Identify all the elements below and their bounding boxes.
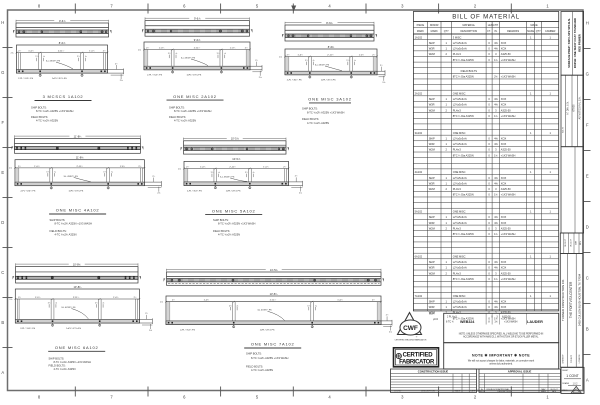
svg-text:⅞: ⅞ [102,302,104,305]
svg-text:C: C [1,270,4,275]
svg-text:PL⅜x3: PL⅜x3 [453,148,462,152]
svg-text:1xPL¾X7⅞ FS: 1xPL¾X7⅞ FS [52,77,67,80]
svg-text:67000: 67000 [573,104,576,112]
svg-text:11'-8¾: 11'-8¾ [74,134,82,138]
svg-text:XOX: XOX [501,176,507,180]
svg-text:8-TC ¾x2¼ A325N +1X3 WASH: 8-TC ¾x2¼ A325N +1X3 WASH [218,221,255,225]
svg-text:1¾: 1¾ [35,55,38,58]
svg-text:LAUDER: LAUDER [527,320,543,324]
svg-text:CERTIFIED WELDING FABRICATOR: CERTIFIED WELDING FABRICATOR [395,339,427,342]
svg-text:W2M: W2M [429,226,435,230]
svg-text:+1X3 WASH: +1X3 WASH [501,58,516,62]
svg-text:W3R: W3R [429,181,435,185]
svg-text:L2½x5x3x⅜: L2½x5x3x⅜ [453,305,468,309]
svg-text:2-PL ¼X4¾ FS: 2-PL ¼X4¾ FS [20,190,35,193]
svg-text:4-TC ¾x2¾ A325N: 4-TC ¾x2¾ A325N [36,119,58,123]
svg-text:3-L 4X3X¼ FS: 3-L 4X3X¼ FS [64,175,79,178]
svg-text:1'-0¾: 1'-0¾ [263,166,269,169]
svg-text:A325-50: A325-50 [501,226,511,230]
svg-text:8TC ¾ Dia A325N: 8TC ¾ Dia A325N [453,58,474,62]
svg-text:DRAWN BY: DRAWN BY [562,354,565,364]
svg-text:1xPL¾X7⅞ FS: 1xPL¾X7⅞ FS [66,327,81,330]
svg-text:10'-8¾: 10'-8¾ [73,285,82,289]
svg-text:8TC ¾ Dia A325N: 8TC ¾ Dia A325N [453,114,474,118]
svg-text:NOTE: UNLESS OTHERWISE SPECIFI: NOTE: UNLESS OTHERWISE SPECIFIED, ALL WE… [459,332,544,335]
svg-text:1'-0¾: 1'-0¾ [113,296,119,299]
svg-text:XOX: XOX [501,266,507,270]
svg-text:1¾: 1¾ [305,59,308,62]
svg-text:9'-6⅞: 9'-6⅞ [194,38,201,42]
svg-text:2402 CULLEN BLVD HOUSTON, TX 7: 2402 CULLEN BLVD HOUSTON, TX 77004 [578,273,582,326]
svg-text:XOX: XOX [501,305,507,309]
svg-text:1xPL¾X7⅞ FS: 1xPL¾X7⅞ FS [260,328,275,331]
svg-text:E: E [1,170,4,175]
svg-text:BILL OF MATERIAL: BILL OF MATERIAL [452,14,520,21]
svg-text:PL⅜x3: PL⅜x3 [453,187,462,191]
svg-text:4-TC ¾x2¾ A325N: 4-TC ¾x2¾ A325N [54,367,76,371]
svg-text:ONE MISC: ONE MISC [453,210,466,214]
svg-text:13'-5¾: 13'-5¾ [270,292,279,296]
svg-text:2⅞: 2⅞ [160,301,163,304]
svg-text:1¾: 1¾ [346,59,349,62]
svg-text:XOX: XOX [501,260,507,264]
svg-text:A325-50: A325-50 [501,311,511,315]
svg-text:4-TC ¾x2¾ A325N: 4-TC ¾x2¾ A325N [218,233,240,237]
svg-text:2⅞: 2⅞ [279,55,282,58]
svg-text:W2M: W2M [429,108,435,112]
svg-text:⅞: ⅞ [43,55,45,58]
svg-text:2A102: 2A102 [415,92,423,96]
svg-text:8TC ¾ Dia A325N: 8TC ¾ Dia A325N [453,153,474,157]
svg-text:REMARKS: REMARKS [507,30,519,33]
svg-text:4-TC ¾x2¾ A325N: 4-TC ¾x2¾ A325N [307,121,329,125]
svg-text:⅞: ⅞ [354,59,356,62]
svg-text:DRAWN: DRAWN [562,382,569,385]
svg-text:⅞: ⅞ [224,52,226,55]
svg-text:XOX: XOX [501,215,507,219]
svg-text:MAKE: MAKE [527,30,534,33]
svg-text:102: 102 [572,381,577,385]
svg-text:1'-0¾: 1'-0¾ [120,165,126,168]
svg-text:+1X3 WASH: +1X3 WASH [501,232,516,236]
svg-text:8'-6¾: 8'-6¾ [328,45,335,49]
svg-text:QTY: QTY [444,30,449,33]
svg-text:L2½x5x3x⅜: L2½x5x3x⅜ [453,260,468,264]
svg-text:L2½x5x3x⅜: L2½x5x3x⅜ [453,142,468,146]
svg-text:+1X3 WASH: +1X3 WASH [501,277,516,281]
svg-text:3-L 4X3X¼ FS: 3-L 4X3X¼ FS [61,306,76,309]
svg-text:L2½x5x3x⅜: L2½x5x3x⅜ [453,299,468,303]
svg-text:9'-6⅞: 9'-6⅞ [59,19,66,23]
svg-text:L2½x5x3x⅜: L2½x5x3x⅜ [453,103,468,107]
svg-text:XOX: XOX [501,41,507,45]
svg-text:3-L 4X3X¼ FS: 3-L 4X3X¼ FS [257,309,272,312]
svg-text:L2½x5x3x⅜: L2½x5x3x⅜ [453,221,468,225]
svg-text:1¾: 1¾ [217,52,220,55]
svg-text:1'-0¾: 1'-0¾ [297,54,303,57]
svg-text:SHIP BOLTS:: SHIP BOLTS: [50,218,66,222]
svg-text:+1X3 WASH: +1X3 WASH [501,114,516,118]
svg-text:DATE: DATE [470,389,476,392]
svg-text:W2M: W2M [429,187,435,191]
svg-text:1¾: 1¾ [245,171,248,174]
svg-text:D: D [1,220,4,225]
svg-text:SHIP BOLTS:: SHIP BOLTS: [49,357,65,361]
svg-text:F: F [586,123,589,128]
svg-text:1¾: 1¾ [77,55,80,58]
svg-text:5A102: 5A102 [415,210,423,214]
svg-text:PL⅜x3: PL⅜x3 [453,271,462,275]
svg-text:H: H [1,20,4,25]
svg-text:2-PL ¼X4¾ FS: 2-PL ¼X4¾ FS [187,189,202,192]
svg-text:µC/4: µC/4 [433,319,439,321]
svg-text:CERTIFIED: CERTIFIED [403,353,434,359]
svg-text:8TC ¾ Dia A325N: 8TC ¾ Dia A325N [453,75,474,79]
svg-text:B: B [1,320,4,325]
svg-text:XOX: XOX [501,221,507,225]
svg-text:XOX: XOX [501,97,507,101]
svg-text:A325-50: A325-50 [501,271,511,275]
svg-text:+1X3 WASH: +1X3 WASH [501,75,516,79]
svg-text:PROJECT: PROJECT [571,355,573,363]
svg-text:L2½x5x3x⅜: L2½x5x3x⅜ [453,41,468,45]
svg-text:F: F [2,120,5,125]
svg-text:ACCORDANCE WITH AWS D1.1 WITH: ACCORDANCE WITH AWS D1.1 WITH E70XX OR E… [463,336,539,339]
svg-text:unless duly authorized.: unless duly authorized. [489,363,513,366]
svg-text:1¾: 1¾ [103,171,106,174]
svg-text:2⅞: 2⅞ [382,81,385,84]
svg-text:THE FORTVITA CENTER: THE FORTVITA CENTER [569,281,573,318]
svg-text:2-PL ¼X4¾ FS: 2-PL ¼X4¾ FS [180,328,195,331]
svg-text:QTY: QTY [536,30,541,33]
svg-text:3-L 4X3X¼ FS: 3-L 4X3X¼ FS [315,64,330,67]
svg-text:2⅞: 2⅞ [9,298,12,301]
svg-text:3A102: 3A102 [415,131,423,135]
svg-text:⅞: ⅞ [313,59,315,62]
svg-text:L2½x5x3x⅜: L2½x5x3x⅜ [453,181,468,185]
svg-text:8-TC ¾x2¼ A325N +1X3 WASH: 8-TC ¾x2¼ A325N +1X3 WASH [55,221,92,225]
svg-text:SHIP: SHIP [429,260,435,264]
svg-text:3 MCSCS 1A102: 3 MCSCS 1A102 [43,94,84,99]
svg-text:FIELD BOLTS: FIELD BOLTS [461,69,478,73]
svg-text:L2½x5x3x⅜: L2½x5x3x⅜ [453,47,468,51]
svg-text:11'-8¾: 11'-8¾ [76,156,84,160]
svg-text:2⅞: 2⅞ [9,167,12,170]
svg-text:1'-0¾: 1'-0¾ [230,47,236,50]
svg-text:4-TC ¾x2¾ A325N: 4-TC ¾x2¾ A325N [174,119,196,123]
svg-text:13'-5¾: 13'-5¾ [270,268,279,272]
svg-text:SHIP: SHIP [429,137,435,141]
svg-text:1¾: 1¾ [229,304,232,307]
svg-text:A325-50: A325-50 [501,52,511,56]
svg-text:WEB324: WEB324 [460,320,474,324]
svg-text:ONE MISC 6A102: ONE MISC 6A102 [55,345,99,350]
svg-text:H: H [586,21,589,26]
svg-text:PL⅜x3: PL⅜x3 [453,108,462,112]
svg-text:1'-0¾: 1'-0¾ [204,299,210,302]
svg-text:DESCRIPTION: DESCRIPTION [421,390,435,392]
svg-text:SHIP BOLTS:: SHIP BOLTS: [302,106,318,110]
svg-text:W3R: W3R [429,266,435,270]
svg-text:ONE MISC 4A102: ONE MISC 4A102 [56,208,100,213]
svg-text:PL⅜x3: PL⅜x3 [453,311,462,315]
svg-text:8-TC ¾x2¼ A325N +1X3 WASH: 8-TC ¾x2¼ A325N +1X3 WASH [251,356,288,360]
svg-text:XOX: XOX [501,181,507,185]
svg-text:DESCRIPTION: DESCRIPTION [498,391,512,393]
svg-text:8TC ¾ Dia A325N: 8TC ¾ Dia A325N [453,277,474,281]
svg-text:1'-0¾: 1'-0¾ [359,54,365,57]
svg-text:E: E [586,174,589,179]
svg-text:MARK: MARK [417,30,424,33]
svg-text:L2½x5x3x⅜: L2½x5x3x⅜ [453,137,468,141]
svg-text:8-TC ¾x2¼ A325N +1X3 WASH: 8-TC ¾x2¼ A325N +1X3 WASH [36,109,73,113]
svg-text:8-TC ¾x2¼ A325N +1X3 WASH: 8-TC ¾x2¼ A325N +1X3 WASH [174,109,211,113]
svg-text:⅞: ⅞ [236,304,238,307]
svg-text:⅞: ⅞ [175,52,177,55]
svg-text:SHIP: SHIP [429,176,435,180]
svg-text:G: G [1,70,4,75]
svg-text:3-L 4X3X¼ FS: 3-L 4X3X¼ FS [181,57,196,60]
svg-text:3 MISC: 3 MISC [453,35,462,39]
svg-text:4-TC ¾x2¾ A325N: 4-TC ¾x2¾ A325N [55,233,77,237]
svg-text:ONE MISC: ONE MISC [453,255,466,259]
svg-text:L2½x5x3x⅜: L2½x5x3x⅜ [453,97,468,101]
svg-text:ONE MISC: ONE MISC [453,294,466,298]
svg-text:1'-0¾: 1'-0¾ [89,50,95,53]
svg-text:L2½x5x3x⅜: L2½x5x3x⅜ [453,176,468,180]
svg-text:SHIP: SHIP [429,97,435,101]
svg-text:⅞: ⅞ [55,302,57,305]
svg-text:1'-0¾: 1'-0¾ [159,47,165,50]
svg-text:1'-0¾: 1'-0¾ [35,296,41,299]
svg-text:1¾: 1¾ [168,52,171,55]
svg-text:⅞: ⅞ [253,171,255,174]
svg-text:SHIP BOLTS:: SHIP BOLTS: [31,106,47,110]
svg-text:1¾: 1¾ [210,171,213,174]
svg-text:08-15-07: 08-15-07 [570,239,572,247]
svg-text:1xPL¾X7⅞ FS: 1xPL¾X7⅞ FS [321,79,336,82]
svg-text:ONE MISC 5A102: ONE MISC 5A102 [212,208,256,213]
svg-text:+1X3 WASH: +1X3 WASH [501,153,516,157]
svg-text:¾" DIA. U.N.: ¾" DIA. U.N. [567,101,570,115]
svg-text:SHIP: SHIP [429,41,435,45]
svg-text:8 TC ¾: 8 TC ¾ [446,321,455,324]
svg-text:2⅞: 2⅞ [138,48,141,51]
svg-text:1'-0¾: 1'-0¾ [337,299,343,302]
svg-text:FIELD BOLTS:: FIELD BOLTS: [213,229,230,233]
svg-text:1xPL¾X7⅞ FS: 1xPL¾X7⅞ FS [226,189,241,192]
svg-text:2-PL ¼X4¾ FS: 2-PL ¼X4¾ FS [20,327,35,330]
svg-text:TURNER CONSTRUCTION CO.: TURNER CONSTRUCTION CO. [561,279,565,321]
svg-text:⅞: ⅞ [111,171,113,174]
svg-text:1'-0¾: 1'-0¾ [28,50,34,53]
svg-text:CONSTRUCTION ISSUE: CONSTRUCTION ISSUE [418,370,449,374]
svg-text:FIELD BOLTS:: FIELD BOLTS: [302,117,319,121]
svg-text:ONE MISC: ONE MISC [453,131,466,135]
svg-text:APPROVAL ISSUE: APPROVAL ISSUE [508,370,532,374]
svg-text:COL NO: COL NO [394,390,402,392]
svg-text:2⅞: 2⅞ [157,192,160,195]
svg-text:BOLTS: BOLTS [563,126,565,133]
svg-text:ONE MISC 2A102: ONE MISC 2A102 [173,94,217,99]
svg-text:A: A [1,370,4,375]
svg-text:FIELD BOLTS:: FIELD BOLTS: [49,364,66,368]
svg-text:CAMBER: CAMBER [545,30,556,33]
svg-text:MINOR: MINOR [430,23,439,27]
svg-text:RED PRIMER: RED PRIMER [578,34,582,52]
svg-text:1'-0¾: 1'-0¾ [34,165,40,168]
svg-text:XOX: XOX [501,137,507,141]
svg-text:2⅞: 2⅞ [259,76,262,79]
svg-text:WELD: WELD [562,390,568,392]
svg-text:2⅞: 2⅞ [11,51,14,54]
svg-text:7A102: 7A102 [415,294,423,298]
svg-text:MADE: MADE [455,389,461,392]
svg-text:2⅞: 2⅞ [299,192,302,195]
svg-text:9'-6⅞: 9'-6⅞ [194,16,201,20]
svg-text:8TC ¾ Dia A325N: 8TC ¾ Dia A325N [453,232,474,236]
svg-text:2⅞: 2⅞ [149,329,152,332]
svg-text:B: B [586,327,589,332]
svg-text:⅞: ⅞ [315,304,317,307]
svg-text:FIELD BOLTS:: FIELD BOLTS: [50,229,67,233]
svg-text:CHK BY: CHK BY [479,391,486,393]
svg-text:We will not accept charges for: We will not accept charges for labor, ma… [468,359,535,362]
svg-text:1'-0¾: 1'-0¾ [200,166,206,169]
svg-text:1 CONT: 1 CONT [566,374,578,378]
svg-text:SHEET: SHEET [562,370,569,372]
svg-text:XOX: XOX [501,142,507,146]
svg-text:4-TC ¾x2¾ A325N: 4-TC ¾x2¾ A325N [251,368,273,372]
svg-text:3-L 4X3X¼ FS: 3-L 4X3X¼ FS [220,176,235,179]
svg-text:1¾: 1¾ [95,302,98,305]
svg-text:MATERIAL: MATERIAL [463,23,476,27]
svg-text:L2½x5x3x⅜: L2½x5x3x⅜ [453,215,468,219]
svg-text:8-TC ¾x2¼ A325N +1X3 WASH: 8-TC ¾x2¼ A325N +1X3 WASH [307,111,344,115]
svg-text:8'-6⅞: 8'-6⅞ [59,41,66,45]
svg-text:AS NOTED IN U.S.A.: AS NOTED IN U.S.A. [578,96,581,119]
svg-text:8'-6¾: 8'-6¾ [326,21,333,25]
svg-text:ONE MISC 7A102: ONE MISC 7A102 [251,342,295,347]
svg-text:LENGTH: LENGTH [488,23,498,27]
svg-text:2 PL ⅜x3: 2 PL ⅜x3 [447,317,457,319]
svg-text:PL⅜x3: PL⅜x3 [453,52,462,56]
svg-text:W2M: W2M [429,271,435,275]
svg-text:IN.: IN. [494,30,497,33]
svg-text:ONE MISC: ONE MISC [453,170,466,174]
svg-text:SHIP BOLTS:: SHIP BOLTS: [246,352,262,356]
svg-text:W2M: W2M [429,52,435,56]
svg-text:8TC ¾ Dia A325N: 8TC ¾ Dia A325N [453,193,474,197]
svg-text:MAKE: MAKE [530,23,538,27]
svg-text:⅞: ⅞ [85,55,87,58]
svg-text:SURFACE PREP: SSPC-SP2 SP3 B.N: SURFACE PREP: SSPC-SP2 SP3 B.N. [567,18,571,68]
svg-text:SHIP: SHIP [429,215,435,219]
svg-text:W3R: W3R [429,47,435,51]
svg-text:W3R: W3R [429,305,435,309]
svg-text:XOX: XOX [501,47,507,51]
svg-text:2⅞: 2⅞ [178,167,181,170]
svg-text:10'-8¾: 10'-8¾ [73,262,82,266]
svg-text:A: A [586,378,589,383]
svg-text:MADE: MADE [541,390,547,393]
svg-text:⅞: ⅞ [218,171,220,174]
svg-text:D: D [586,225,589,230]
svg-text:2-PL ¼X4¾ FS: 2-PL ¼X4¾ FS [287,79,302,82]
svg-text:1¾: 1¾ [46,171,49,174]
svg-text:3-L 4X3X¼ FS: 3-L 4X3X¼ FS [46,60,61,63]
svg-text:NOTE ✱ IMPORTANT ✱ NOTE: NOTE ✱ IMPORTANT ✱ NOTE [472,353,530,357]
svg-text:⅞: ⅞ [54,171,56,174]
svg-text:C: C [586,276,589,281]
svg-text:2⅞: 2⅞ [389,331,392,334]
svg-text:W2M: W2M [429,148,435,152]
svg-text:G: G [586,72,589,77]
svg-text:W3/4: W3/4 [429,314,435,316]
svg-text:FABRICATOR: FABRICATOR [399,359,435,365]
svg-text:ONE MISC 3A102: ONE MISC 3A102 [308,97,352,102]
svg-text:1¾: 1¾ [307,304,310,307]
svg-text:FT.: FT. [487,30,491,33]
svg-text:W3R: W3R [429,103,435,107]
svg-text:6A102: 6A102 [415,255,423,259]
svg-text:1¾: 1¾ [48,302,51,305]
svg-text:2-PL ¼X4¾ FS: 2-PL ¼X4¾ FS [147,74,162,77]
svg-text:W3R: W3R [429,221,435,225]
svg-text:LOCATION: LOCATION [578,354,581,363]
svg-text:FINISH: ONE SHOP COAT STANDARD: FINISH: ONE SHOP COAT STANDARD [573,18,577,68]
svg-text:SHIP BOLTS:: SHIP BOLTS: [213,218,229,222]
svg-text:A325-50: A325-50 [501,187,511,191]
svg-text:XOX: XOX [501,299,507,303]
svg-text:A325-50: A325-50 [501,148,511,152]
svg-text:2⅞: 2⅞ [120,79,123,82]
svg-text:ONE MISC: ONE MISC [453,92,466,96]
svg-text:1xPL¾X7⅞ FS: 1xPL¾X7⅞ FS [68,190,83,193]
svg-text:W3R: W3R [429,142,435,146]
svg-text:10'-5⅞: 10'-5⅞ [232,157,241,161]
svg-text:4A102: 4A102 [415,170,423,174]
svg-text:2-PL ¼X4¾ FS: 2-PL ¼X4¾ FS [18,77,33,80]
svg-text:A325-50: A325-50 [502,316,511,319]
svg-text:+1X3 WASH: +1X3 WASH [504,321,518,324]
svg-text:SHIP BOLTS:: SHIP BOLTS: [169,106,185,110]
svg-text:10'-5⅞: 10'-5⅞ [231,137,240,141]
svg-text:PIECE: PIECE [417,23,425,27]
svg-text:1A102: 1A102 [415,35,423,39]
svg-text:DESCRIPTION: DESCRIPTION [460,30,477,33]
svg-text:+1X3 WASH: +1X3 WASH [501,193,516,197]
svg-text:08-15-07: 08-15-07 [565,239,567,247]
svg-text:XOX: XOX [501,103,507,107]
svg-text:1xPL¾X7⅞ FS: 1xPL¾X7⅞ FS [186,74,201,77]
svg-text:MARK: MARK [431,30,438,33]
svg-text:CWF: CWF [403,325,418,332]
svg-text:SHIP: SHIP [429,299,435,303]
svg-text:L2½x5x3x⅜: L2½x5x3x⅜ [453,266,468,270]
svg-text:PL⅜x3: PL⅜x3 [453,226,462,230]
svg-text:A325-50: A325-50 [501,108,511,112]
